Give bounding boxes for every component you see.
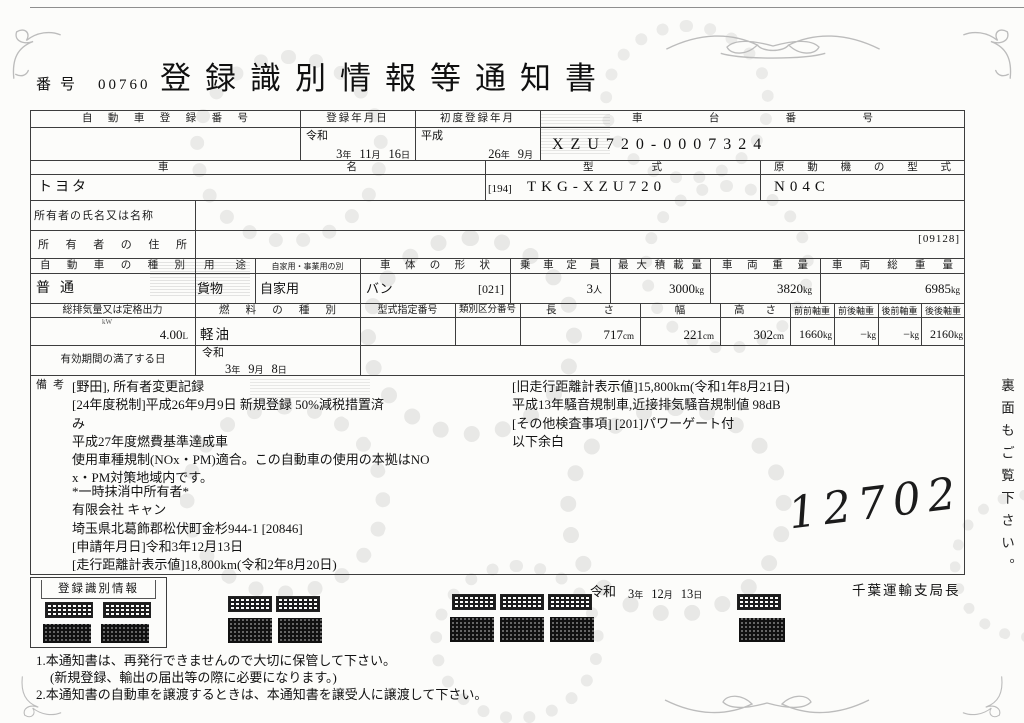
remark-line: 有限会社 キャン: [72, 501, 337, 519]
corner-ornament-icon: [958, 26, 1016, 84]
label-remarks: 備考: [36, 380, 70, 391]
qr-code: [548, 594, 592, 610]
grid-line: [30, 273, 965, 274]
grid-line: [30, 127, 965, 128]
registration-id-box: 登録識別情報: [30, 577, 167, 648]
remark-line: 平成27年度燃費基準達成車: [72, 433, 430, 451]
header-fuel-type: 燃料の種別: [195, 306, 360, 317]
width-value: 221cm: [640, 328, 714, 341]
grid-line: [30, 375, 965, 376]
qr-code: [450, 617, 494, 642]
qr-code: [452, 594, 496, 610]
header-car-number: 自動車登録番号: [30, 114, 300, 125]
validity-date-value: 3年9月8日: [225, 361, 287, 377]
header-private-business: 自家用・事業用の別: [255, 263, 360, 271]
grid-line: [30, 258, 965, 259]
scanned-notification-document: 番号 00760 登録識別情報等通知書: [0, 0, 1024, 723]
axle-front-rear-value: −kg: [834, 328, 876, 340]
footer-note-1b: (新規登録、輸出の届出等の際に必要になります。): [50, 671, 337, 684]
header-max-payload: 最大積載量: [610, 261, 710, 272]
corner-ornament-icon: [955, 672, 1010, 720]
table-border: [30, 110, 965, 111]
header-engine-model: 原動機の型式: [760, 163, 965, 174]
table-border: [30, 110, 31, 575]
displacement-kw-mark: kW: [102, 319, 112, 326]
vehicle-kind-value: 普通: [36, 282, 84, 296]
qr-code: [500, 617, 544, 642]
header-car-name: 車名: [30, 163, 485, 174]
remark-line: 平成13年騒音規制車,近接排気騒音規制値 98dB: [512, 396, 790, 414]
header-length: 長さ: [520, 306, 640, 317]
validity-era: 令和: [202, 348, 224, 359]
grid-line: [30, 303, 965, 304]
remark-line: 以下余白: [512, 433, 790, 451]
header-gross-weight: 車両総重量: [820, 261, 965, 272]
main-table: 自動車登録番号 登録年月日 初度登録年月 車台番号 令和 3年11月16日 平成…: [30, 110, 965, 575]
header-type-cert-number: 型式指定番号: [360, 306, 455, 316]
corner-ornament-icon: [8, 26, 66, 84]
header-capacity: 乗車定員: [510, 261, 610, 272]
qr-code: [228, 618, 272, 643]
header-first-reg: 初度登録年月: [415, 114, 540, 125]
registration-id-label: 登録識別情報: [41, 580, 156, 599]
grid-line: [30, 200, 965, 201]
axle-rear-rear-value: 2160kg: [921, 328, 963, 340]
label-validity-date: 有効期間の満了する日: [33, 355, 193, 366]
first-reg-era: 平成: [421, 131, 443, 142]
header-axle-rear-rear: 後後軸重: [921, 307, 965, 316]
fuel-type-value: 軽油: [200, 328, 231, 342]
displacement-value: 4.00L: [30, 328, 188, 341]
use-value: 貨物: [197, 282, 223, 295]
header-model: 型式: [485, 163, 760, 174]
qr-code: [500, 594, 544, 610]
header-reg-date: 登録年月日: [300, 114, 415, 125]
qr-code: [276, 596, 320, 612]
header-class-number: 類別区分番号: [455, 306, 520, 316]
reg-date-era: 令和: [306, 131, 328, 142]
remarks-left-bottom: *一時抹消中所有者* 有限会社 キャン 埼玉県北葛飾郡松伏町金杉944-1 [2…: [72, 483, 337, 574]
first-reg-value: 26年9月: [415, 146, 533, 162]
qr-code: [739, 618, 785, 642]
remark-line: 使用車種規制(NOx・PM)適合。この自動車の使用の本拠はNO: [72, 451, 430, 469]
header-use: 用途: [195, 261, 255, 272]
remark-line: [申請年月日]令和3年12月13日: [72, 538, 337, 556]
border-ornament-icon: [652, 686, 882, 720]
header-axle-front-rear: 前後軸重: [834, 307, 878, 316]
header-width: 幅: [640, 306, 720, 317]
body-shape-code: [021]: [360, 283, 504, 295]
remark-line: [走行距離計表示値]18,800km(令和2年8月20日): [72, 556, 337, 574]
grid-line: [195, 200, 196, 375]
qr-code: [101, 624, 149, 643]
model-value: TKG-XZU720: [527, 180, 666, 195]
header-vehicle-weight: 車両重量: [710, 261, 820, 272]
header-height: 高さ: [720, 306, 790, 317]
qr-code: [278, 618, 322, 643]
capacity-value: 3人: [510, 282, 602, 295]
doc-number-label: 番号: [36, 78, 84, 93]
engine-model-value: N04C: [774, 180, 830, 195]
grid-line: [360, 258, 361, 375]
axle-front-front-value: 1660kg: [790, 328, 832, 340]
chassis-number-value: XZU720-0007324: [552, 137, 768, 153]
remarks-right: [旧走行距離計表示値]15,800km(令和1年8月21日) 平成13年騒音規制…: [512, 378, 790, 451]
axle-rear-front-value: −kg: [878, 328, 919, 340]
qr-code: [43, 624, 91, 643]
handwritten-number: 12702: [786, 468, 966, 540]
length-value: 717cm: [520, 328, 634, 341]
private-value: 自家用: [260, 282, 299, 295]
height-value: 302cm: [720, 328, 784, 341]
qr-code: [103, 602, 151, 618]
remark-line: み: [72, 415, 430, 433]
remark-line: [24年度税制]平成26年9月9日 新規登録 50%減税措置済: [72, 396, 430, 414]
qr-code: [737, 594, 781, 610]
remark-line: [その他検査事項] [201]パワーゲート付: [512, 415, 790, 433]
header-axle-rear-front: 後前軸重: [878, 307, 921, 316]
header-displacement: 総排気量又は定格出力: [30, 306, 195, 316]
remark-line: 埼玉県北葛飾郡松伏町金杉944-1 [20846]: [72, 520, 337, 538]
owner-address-code: [09128]: [830, 234, 960, 245]
header-chassis-number: 車台番号: [540, 114, 965, 125]
remark-line: *一時抹消中所有者*: [72, 483, 337, 501]
remark-line: [旧走行距離計表示値]15,800km(令和1年8月21日): [512, 378, 790, 396]
footer-note-2: 2.本通知書の自動車を譲渡するときは、本通知書を譲受人に譲渡して下さい。: [36, 688, 487, 701]
qr-code: [550, 617, 594, 642]
issue-date-value: 3年12月13日: [628, 586, 702, 602]
header-body-shape: 車体の形状: [360, 261, 510, 272]
grid-line: [30, 230, 965, 231]
doc-number-value: 00760: [98, 78, 151, 93]
car-name-value: トヨタ: [38, 181, 89, 195]
qr-code: [45, 602, 93, 618]
border-ornament-icon: [658, 28, 888, 64]
label-owner-name: 所有者の氏名又は名称: [34, 211, 154, 222]
label-owner-address: 所有者の住所: [30, 240, 195, 251]
reg-date-value: 3年11月16日: [300, 146, 410, 162]
issuing-office: 千葉運輸支局長: [852, 584, 961, 598]
top-rule: [30, 7, 1024, 8]
header-vehicle-kind: 自動車の種別: [30, 261, 195, 272]
remarks-left-top: [野田], 所有者変更記録 [24年度税制]平成26年9月9日 新規登録 50%…: [72, 378, 430, 488]
payload-value: 3000kg: [610, 282, 704, 295]
grid-line: [30, 174, 965, 175]
issue-date-era: 令和: [590, 585, 616, 598]
side-note-vertical: 裏面もご覧下さい。: [996, 378, 1016, 598]
page-title: 登録識別情報等通知書: [160, 63, 610, 94]
grid-line: [30, 317, 965, 318]
gross-weight-value: 6985kg: [820, 282, 960, 295]
weight-value: 3820kg: [710, 282, 812, 295]
footer-note-1: 1.本通知書は、再発行できませんので大切に保管して下さい。: [36, 654, 396, 667]
table-border: [964, 110, 965, 575]
header-axle-front-front: 前前軸重: [790, 307, 834, 316]
grid-line: [30, 345, 965, 346]
qr-code: [228, 596, 272, 612]
remark-line: [野田], 所有者変更記録: [72, 378, 430, 396]
model-code: [194]: [488, 184, 512, 195]
